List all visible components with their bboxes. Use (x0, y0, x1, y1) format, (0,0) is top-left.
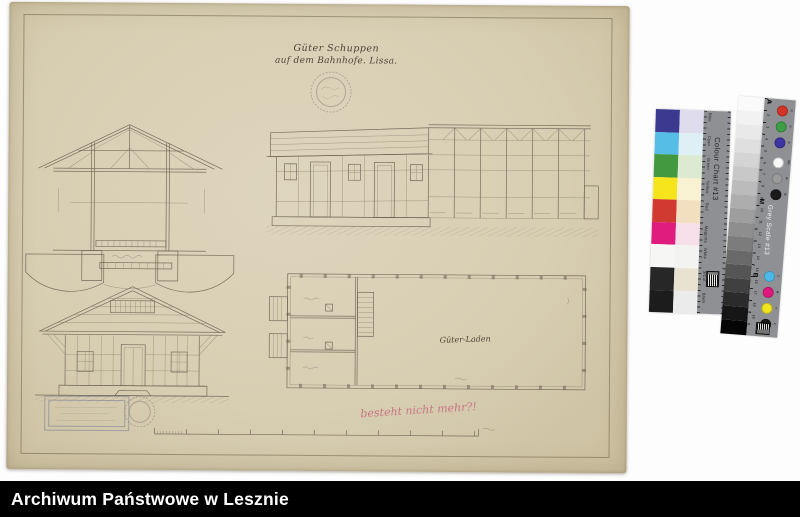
round-stamp (311, 72, 351, 112)
colour-chart-row (649, 289, 698, 313)
colour-patch-pale-white (674, 245, 699, 268)
colour-chart-row (652, 199, 701, 223)
colour-patch-pale-yellow (677, 177, 702, 200)
plan-room-label: Güter-Laden (440, 334, 491, 344)
grey-scale-marker-b: B (751, 272, 758, 277)
colour-chart: BlueCyanGreenYellowRedMagentaWhite3/ColB… (649, 109, 731, 314)
calibration-dot-y (761, 302, 773, 314)
colour-patch-3col (650, 267, 675, 290)
calibration-dot-label: C (776, 275, 779, 277)
archive-name-label: Archiwum Państwowe w Lesznie (11, 489, 289, 510)
grey-scale-tick-number: 5 (763, 149, 767, 151)
calibration-dot-gr (771, 173, 783, 185)
colour-chart-row (654, 154, 703, 178)
colour-chart-barcode (706, 271, 720, 287)
colour-chart-row-label: Black (701, 293, 705, 304)
grey-scale-tick-number: 15 (755, 267, 759, 271)
calibration-dot-label: B (787, 141, 790, 143)
colour-patch-magenta (651, 222, 676, 245)
grey-scale-marker-a: A (765, 99, 772, 104)
colour-patch-red (652, 199, 677, 222)
colour-patch-blue (655, 109, 680, 132)
grey-scale-markers: AMB (765, 98, 796, 100)
floor-plan-drawing: Güter-Laden (269, 274, 586, 390)
grey-scale-tick-number: 10 (759, 208, 763, 212)
grey-scale-tick-number: 12 (757, 232, 761, 236)
grey-scale-title: Grey Scale #13 (763, 204, 774, 255)
grey-scale-tick-number: 13 (756, 243, 760, 247)
calibration-dot-m (762, 286, 774, 298)
calibration-dot-bl (770, 189, 782, 201)
grey-scale-barcode (755, 322, 770, 335)
sheet-title-line2: auf dem Bahnhofe. Lissa. (275, 56, 398, 67)
grey-scale-tick-number: 4 (764, 138, 768, 140)
colour-chart-row-label: Yellow (705, 180, 709, 193)
calibration-dot-r (777, 105, 789, 117)
colour-patch-cyan (654, 132, 679, 155)
calibration-dot-label: M (775, 291, 778, 294)
colour-patch-pale-green (678, 155, 703, 178)
grey-scale-marker-m: M (757, 198, 764, 204)
colour-chart-row (650, 267, 699, 291)
grey-scale-tick-number: 18 (752, 303, 756, 307)
calibration-dot-label: K (773, 323, 776, 325)
calibration-dot-wh (772, 157, 784, 169)
scan-page: Güter Schuppen auf dem Bahnhofe. Lissa. (0, 0, 800, 517)
drawing-sheet: Güter Schuppen auf dem Bahnhofe. Lissa. (6, 2, 629, 473)
grey-scale-tick-number: 14 (755, 255, 759, 259)
colour-chart-row-labels: BlueCyanGreenYellowRedMagentaWhite3/ColB… (704, 111, 731, 112)
colour-patch-pale-black (673, 290, 698, 313)
calibration-dot-label: R (790, 109, 793, 111)
grey-scale-tick-number: 3 (765, 126, 769, 128)
colour-patch-black (649, 289, 674, 312)
colour-chart-row (651, 222, 700, 246)
grey-scale-tick-number: 19 (751, 315, 755, 319)
grey-step (720, 319, 747, 335)
colour-chart-row-label: Magenta (703, 225, 708, 242)
colour-patch-pale-blue (679, 110, 704, 133)
main-scale-bar (155, 426, 495, 436)
calibration-dot-label: Wh (787, 160, 790, 165)
calibration-dot-b (774, 137, 786, 149)
colour-chart-row (655, 109, 704, 133)
architectural-drawing: Güter Schuppen auf dem Bahnhofe. Lissa. (6, 2, 629, 473)
colour-patch-green (654, 154, 679, 177)
sheet-title-line1: Güter Schuppen (293, 43, 379, 55)
colour-chart-rows (649, 109, 704, 314)
colour-chart-row-label: White (703, 248, 707, 259)
calibration-dot-label: Gr (785, 177, 788, 181)
calibration-dot-g (775, 121, 787, 133)
calibration-dot-label: G (788, 125, 791, 128)
colour-patch-white (650, 244, 675, 267)
colour-chart-row-label: Cyan (707, 135, 711, 145)
colour-patch-pale-red (676, 200, 701, 223)
side-elevation-drawing (266, 124, 599, 237)
grey-scale-tick-number: 11 (758, 220, 762, 224)
colour-chart-row-label: Blue (708, 113, 712, 122)
colour-patch-pale-3col (674, 268, 699, 291)
colour-chart-row (653, 177, 702, 201)
grey-scale: 12345678910111213141516171819 AMB RGBWhG… (720, 96, 795, 338)
cross-section-drawing (26, 124, 235, 292)
archive-caption-bar: Archiwum Państwowe w Lesznie (0, 481, 800, 517)
grey-scale-tick-number: 17 (753, 291, 757, 295)
colour-chart-title: Colour Chart #13 (711, 137, 722, 201)
calibration-dot-label: Y (774, 307, 777, 309)
grey-scale-tick-number: 2 (766, 114, 770, 116)
colour-chart-row (650, 244, 699, 268)
grey-scale-tick-number: 16 (754, 279, 758, 283)
calibration-dot-label: Bl (783, 193, 786, 196)
colour-chart-row-label: Red (704, 203, 708, 211)
calibration-dot-c (764, 271, 776, 283)
pink-annotation: besteht nicht mehr?! (360, 400, 477, 420)
colour-chart-row-label: Green (706, 158, 710, 170)
front-elevation-drawing (35, 286, 230, 403)
colour-patch-pale-cyan (678, 132, 703, 155)
colour-patch-yellow (653, 177, 678, 200)
colour-chart-row (654, 132, 703, 156)
grey-scale-tick-number: 6 (762, 161, 766, 163)
colour-patch-pale-magenta (675, 223, 700, 246)
